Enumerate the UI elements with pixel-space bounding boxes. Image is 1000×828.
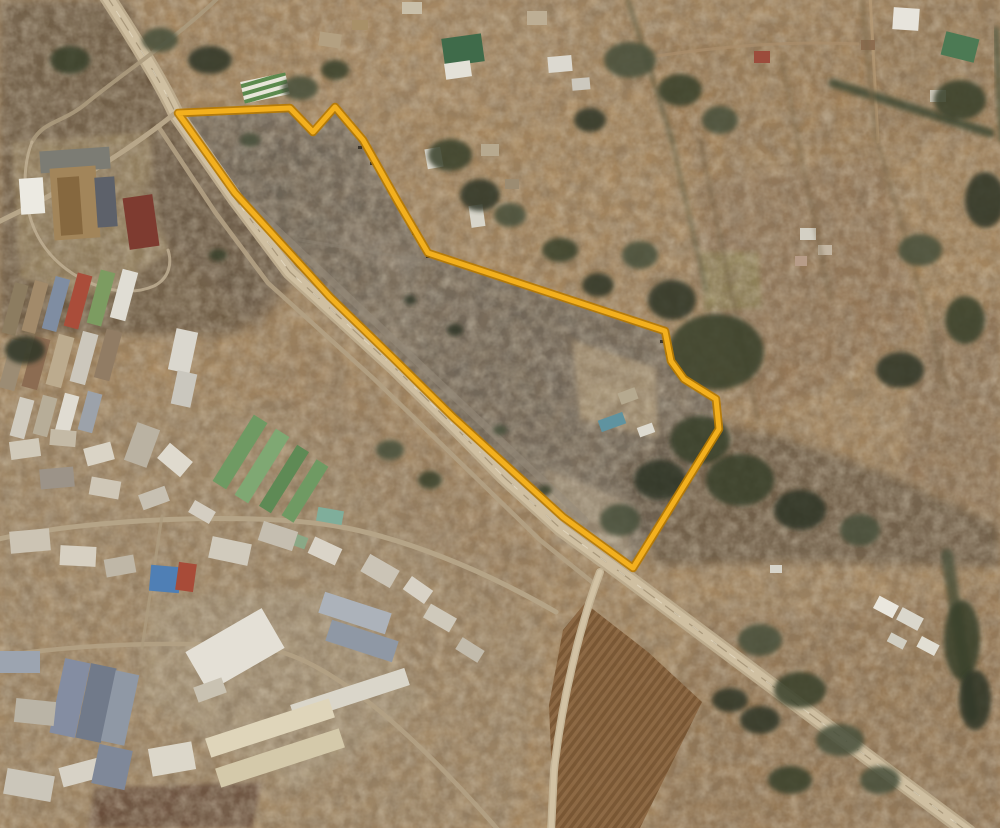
- tree-cluster: [702, 106, 738, 134]
- tree-cluster: [945, 296, 985, 344]
- tree-cluster: [768, 766, 812, 794]
- building: [19, 177, 45, 215]
- tree-cluster: [740, 706, 780, 734]
- building: [14, 698, 56, 726]
- tree-cluster: [404, 295, 416, 305]
- tree-cluster: [622, 241, 658, 269]
- tree-cluster: [282, 76, 318, 100]
- tree-cluster: [658, 74, 702, 106]
- tree-cluster: [959, 670, 991, 730]
- tree-cluster: [648, 280, 696, 320]
- tree-cluster: [240, 133, 260, 147]
- building: [795, 256, 807, 266]
- building: [39, 467, 75, 490]
- tree-cluster: [376, 440, 404, 460]
- tree-cluster: [898, 234, 942, 266]
- terrain-noise-light: [0, 0, 1000, 828]
- tree-cluster: [460, 179, 500, 211]
- tree-cluster: [816, 724, 864, 756]
- tree-cluster: [774, 672, 826, 708]
- tree-cluster: [142, 28, 178, 52]
- tree-cluster: [860, 766, 900, 794]
- tree-cluster: [934, 80, 986, 120]
- tree-cluster: [840, 514, 880, 546]
- boundary-dash-mark: [358, 146, 362, 149]
- tree-cluster: [418, 471, 442, 489]
- tree-cluster: [188, 46, 232, 74]
- tree-cluster: [493, 425, 507, 435]
- building: [94, 176, 117, 227]
- tree-cluster: [209, 249, 227, 261]
- tree-cluster: [712, 688, 748, 712]
- building: [481, 144, 499, 156]
- tree-cluster: [542, 238, 578, 262]
- building: [49, 429, 76, 447]
- building: [892, 7, 919, 31]
- tree-cluster: [574, 108, 606, 132]
- tree-cluster: [447, 324, 463, 336]
- building: [60, 545, 97, 567]
- tree-cluster: [50, 46, 90, 74]
- building: [505, 179, 519, 189]
- tree-cluster: [428, 139, 472, 171]
- tree-cluster: [944, 600, 980, 680]
- satellite-imagery: [0, 0, 1000, 828]
- building: [0, 651, 40, 673]
- tree-cluster: [774, 490, 826, 530]
- tree-cluster: [706, 454, 774, 506]
- tree-cluster: [738, 624, 782, 656]
- building: [57, 176, 83, 235]
- tree-cluster: [600, 504, 640, 536]
- tree-cluster: [604, 42, 656, 78]
- building: [527, 11, 547, 25]
- building: [9, 528, 51, 553]
- tree-cluster: [5, 336, 45, 364]
- building: [572, 77, 591, 91]
- building: [770, 565, 782, 573]
- tree-cluster: [582, 273, 614, 297]
- building: [352, 20, 368, 30]
- tree-cluster: [876, 352, 924, 388]
- tree-cluster: [494, 203, 526, 227]
- building: [800, 228, 816, 240]
- building: [547, 55, 572, 73]
- building: [402, 2, 422, 14]
- map-viewport[interactable]: [0, 0, 1000, 828]
- tree-cluster: [321, 60, 349, 80]
- building: [754, 51, 770, 63]
